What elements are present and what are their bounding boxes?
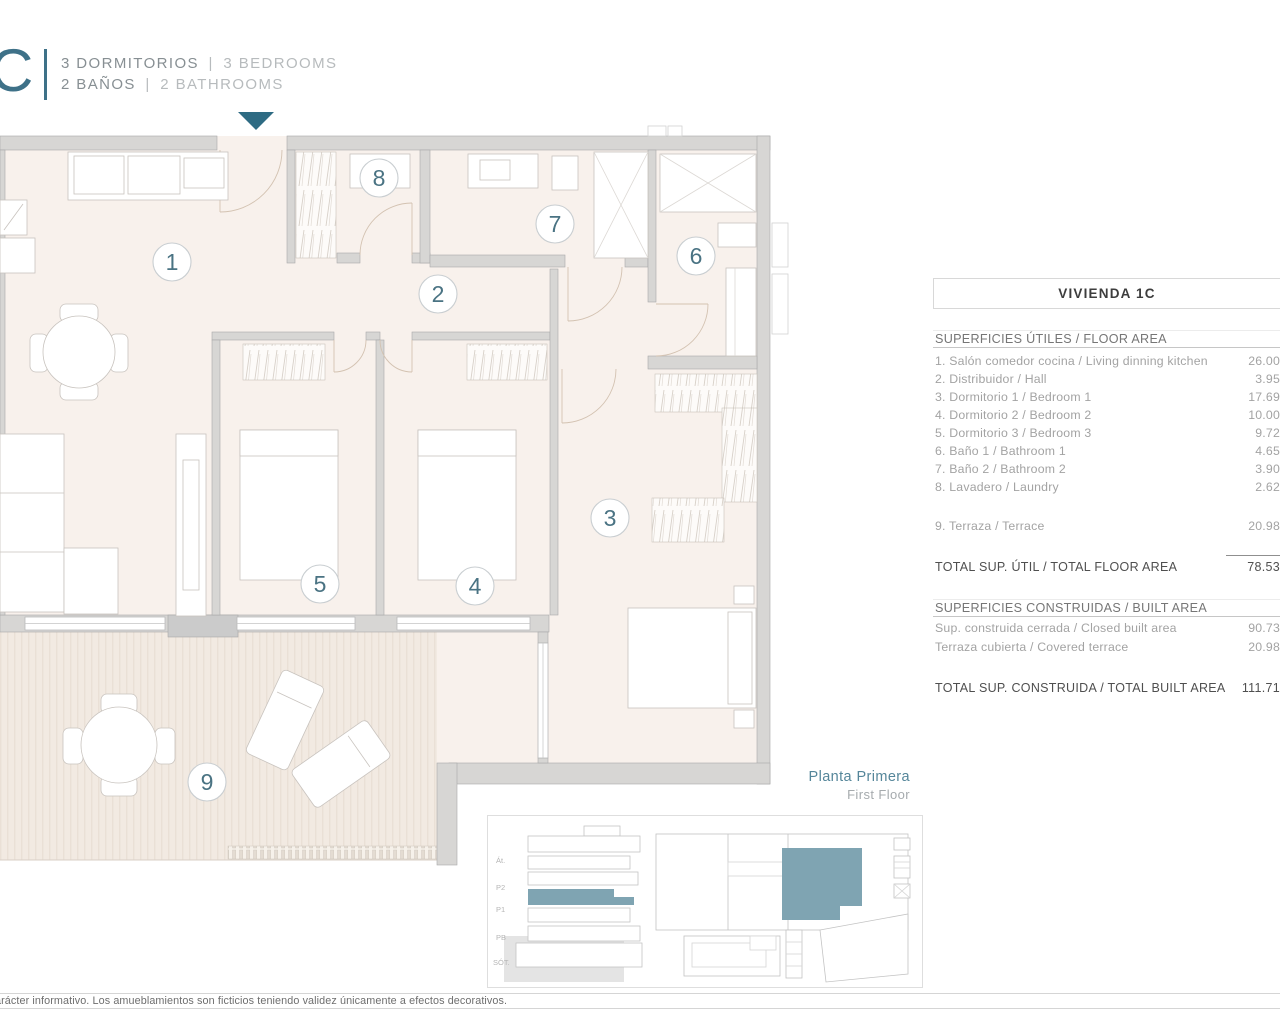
room-label-6: 6 xyxy=(677,237,715,275)
svg-text:6: 6 xyxy=(690,243,703,269)
built-area-header: SUPERFICIES CONSTRUIDAS / BUILT AREA xyxy=(935,601,1280,615)
total-built-area-row: TOTAL SUP. CONSTRUIDA / TOTAL BUILT AREA… xyxy=(935,681,1280,699)
site-inset-drawing: Át. P2 P1 PB SÓT. xyxy=(488,816,922,987)
bedrooms-es: 3 DORMITORIOS xyxy=(61,55,199,72)
room-label-8: 8 xyxy=(360,159,398,197)
floor-label-es: Planta Primera xyxy=(610,769,910,785)
svg-text:8: 8 xyxy=(373,165,386,191)
room-label-5: 5 xyxy=(301,565,339,603)
logo-letter: C xyxy=(0,36,33,105)
svg-text:3: 3 xyxy=(604,505,617,531)
table-row: 7. Baño 2 / Bathroom 23.90 xyxy=(935,462,1280,480)
svg-text:4: 4 xyxy=(469,573,482,599)
table-row: 8. Lavadero / Laundry2.62 xyxy=(935,480,1280,498)
bathrooms-es: 2 BAÑOS xyxy=(61,76,136,93)
highlighted-floor-p1 xyxy=(528,889,614,905)
table-row: 6. Baño 1 / Bathroom 14.65 xyxy=(935,444,1280,462)
svg-text:5: 5 xyxy=(314,571,327,597)
svg-text:2: 2 xyxy=(432,281,445,307)
room-label-2: 2 xyxy=(419,275,457,313)
unit-title: VIVIENDA 1C xyxy=(1058,286,1155,301)
room-label-3: 3 xyxy=(591,499,629,537)
table-row: 5. Dormitorio 3 / Bedroom 39.72 xyxy=(935,426,1280,444)
room-label-7: 7 xyxy=(536,205,574,243)
svg-text:7: 7 xyxy=(549,211,562,237)
logo-divider xyxy=(44,49,47,100)
divider xyxy=(933,599,1280,600)
bathrooms-line: 2 BAÑOS | 2 BATHROOMS xyxy=(61,76,284,93)
room-label-4: 4 xyxy=(456,567,494,605)
divider xyxy=(933,616,1280,617)
bedrooms-line: 3 DORMITORIOS | 3 BEDROOMS xyxy=(61,55,337,72)
floor-plan: 1 2 3 4 5 6 7 8 9 xyxy=(0,108,900,878)
svg-text:9: 9 xyxy=(201,769,214,795)
room-label-1: 1 xyxy=(153,243,191,281)
inset-label-sot: SÓT. xyxy=(493,958,510,967)
table-row: Terraza cubierta / Covered terrace20.98 xyxy=(935,640,1280,658)
entrance-marker-icon xyxy=(238,112,274,130)
svg-text:1: 1 xyxy=(166,249,179,275)
inset-label-atico: Át. xyxy=(496,856,505,865)
floor-area-header: SUPERFICIES ÚTILES / FLOOR AREA xyxy=(935,332,1280,346)
table-row: Sup. construida cerrada / Closed built a… xyxy=(935,621,1280,639)
inset-label-p1: P1 xyxy=(496,905,505,914)
table-row: 3. Dormitorio 1 / Bedroom 117.69 xyxy=(935,390,1280,408)
site-location-inset: Át. P2 P1 PB SÓT. xyxy=(487,815,923,988)
table-row: 4. Dormitorio 2 / Bedroom 210.00 xyxy=(935,408,1280,426)
room-label-9: 9 xyxy=(188,763,226,801)
table-row: 1. Salón comedor cocina / Living dinning… xyxy=(935,354,1280,372)
total-floor-area-row: TOTAL SUP. ÚTIL / TOTAL FLOOR AREA78.53 xyxy=(935,560,1280,578)
inset-label-p2: P2 xyxy=(496,883,505,892)
disclaimer-text: arácter informativo. Los amueblamientos … xyxy=(0,995,507,1007)
inset-label-pb: PB xyxy=(496,933,506,942)
floor-label: Planta Primera First Floor xyxy=(610,769,910,802)
page: C 3 DORMITORIOS | 3 BEDROOMS 2 BAÑOS | 2… xyxy=(0,0,1280,1024)
bedrooms-en: 3 BEDROOMS xyxy=(223,55,337,72)
divider xyxy=(933,347,1280,348)
divider xyxy=(933,330,1280,331)
disclaimer-bar: arácter informativo. Los amueblamientos … xyxy=(0,993,1280,1009)
terrace-balustrade xyxy=(228,846,452,859)
total-rule xyxy=(1226,555,1280,556)
table-row: 2. Distribuidor / Hall3.95 xyxy=(935,372,1280,390)
bathrooms-en: 2 BATHROOMS xyxy=(160,76,283,93)
unit-title-box: VIVIENDA 1C xyxy=(933,278,1280,309)
floor-label-en: First Floor xyxy=(610,787,910,802)
terrace-row: 9. Terraza / Terrace20.98 xyxy=(935,519,1280,537)
